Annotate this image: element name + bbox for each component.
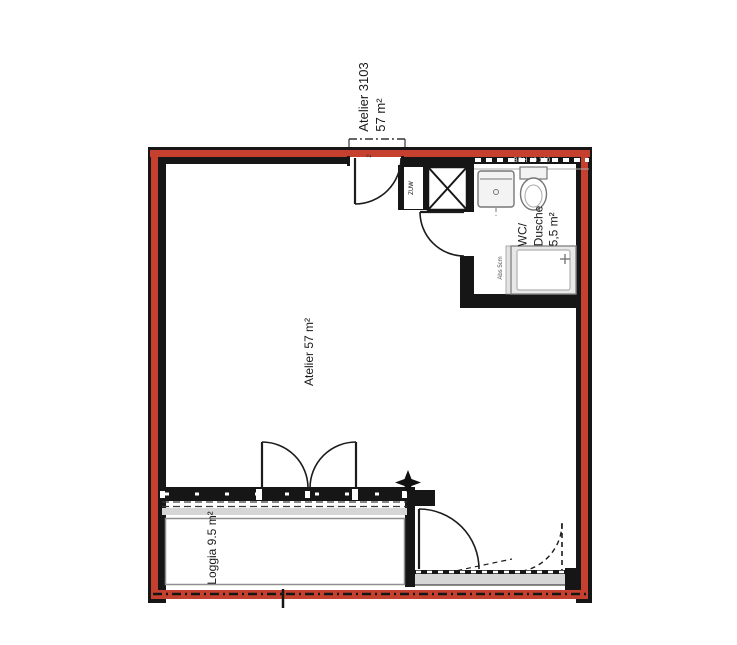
- door-dimension-note: 2: [367, 154, 375, 157]
- terrace-door: [419, 509, 479, 569]
- window-height-note: BRH 40 130: [514, 158, 551, 164]
- terrace-door-dashed: [422, 523, 562, 578]
- room-label-wc: WC/ Dusche 5,5 m²: [516, 206, 563, 247]
- loggia-sill-band: [162, 508, 407, 515]
- loggia-double-door: [262, 442, 356, 488]
- unit-area: 57 m²: [373, 62, 390, 131]
- terrace-glazing-band: [415, 570, 567, 574]
- canopy-dashline: [349, 139, 405, 147]
- unit-title-label: Atelier 3103 57 m²: [356, 62, 390, 131]
- bathroom-south-wall: [460, 294, 592, 308]
- shower: [506, 246, 576, 294]
- corner-step-block: [413, 490, 435, 506]
- shaft-label: ZUW: [409, 181, 417, 195]
- washbasin: [478, 171, 514, 216]
- loggia-awning-dashlines: [162, 502, 407, 507]
- room-label-atelier: Atelier 57 m²: [302, 318, 318, 386]
- vent-shaft-x-icon: [428, 167, 467, 210]
- wc-line-3: 5,5 m²: [547, 206, 563, 247]
- floor-plan: Atelier 3103 57 m² Atelier 57 m² WC/ Dus…: [0, 0, 737, 645]
- room-label-loggia: Loggia 9.5 m²: [205, 511, 221, 584]
- shower-note: Abs 5cm: [498, 256, 506, 279]
- unit-name: Atelier 3103: [356, 62, 373, 131]
- loggia-floor-edge: [166, 519, 405, 585]
- wc-line-2: Dusche: [531, 206, 547, 247]
- toilet: [520, 167, 547, 210]
- wc-line-1: WC/: [516, 206, 532, 247]
- bathroom-door: [420, 212, 464, 256]
